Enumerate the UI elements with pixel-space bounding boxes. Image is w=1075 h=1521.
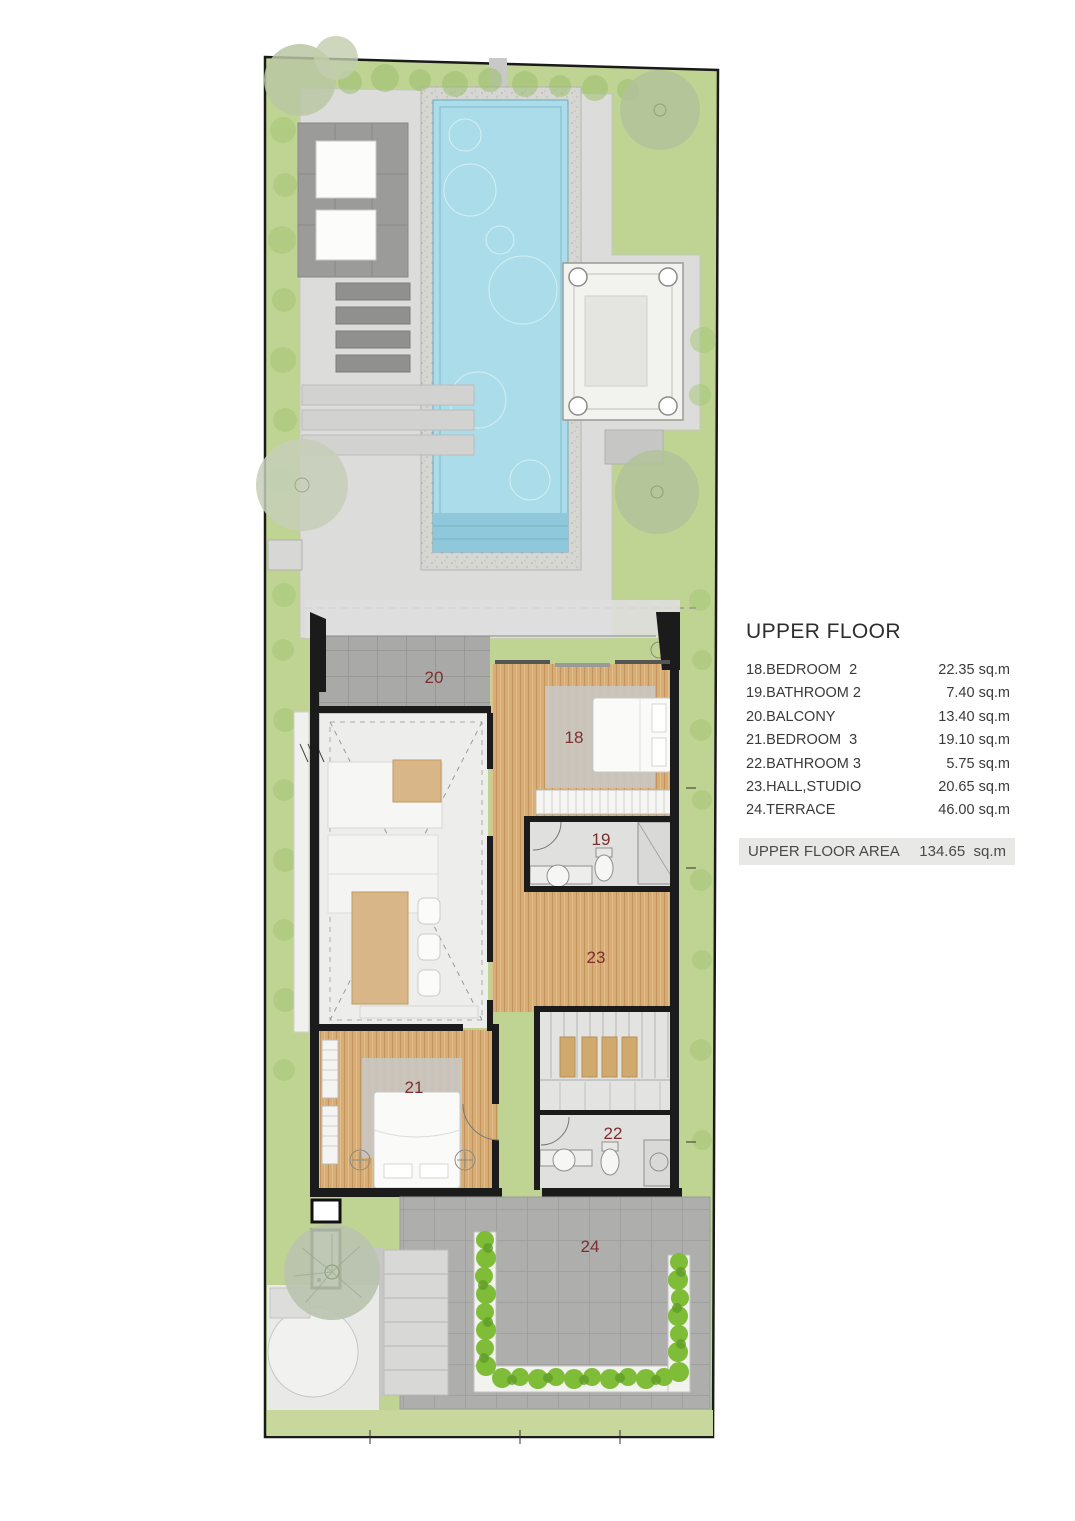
skylight [316, 141, 376, 198]
legend-row-terrace: 24.TERRACE 46.00 sq.m [746, 799, 1010, 822]
toilet [595, 855, 613, 881]
room-name: 20.BALCONY [746, 706, 835, 729]
room-name: 22.BATHROOM 3 [746, 753, 861, 776]
pool-steps [433, 513, 568, 552]
stepping-circle [268, 1307, 358, 1397]
sink [553, 1149, 575, 1171]
room-label-hall: 23 [587, 948, 606, 967]
wide-steps [302, 385, 474, 455]
room-area: 5.75 sq.m [946, 753, 1010, 776]
house-upper-floor [294, 600, 682, 1252]
daybed [585, 296, 647, 386]
room-area: 20.65 sq.m [938, 776, 1010, 799]
room-area: 7.40 sq.m [946, 682, 1010, 705]
room-area: 13.40 sq.m [938, 706, 1010, 729]
grass-verge [267, 1410, 713, 1436]
total-area-value: 134.65 sq.m [919, 843, 1006, 860]
swimming-pool [421, 87, 581, 570]
legend-row-bathroom3: 22.BATHROOM 3 5.75 sq.m [746, 753, 1010, 776]
sink [547, 865, 569, 887]
legend-row-balcony: 20.BALCONY 13.40 sq.m [746, 706, 1010, 729]
total-area-label: UPPER FLOOR AREA [748, 843, 900, 860]
room-area: 22.35 sq.m [938, 659, 1010, 682]
room-name: 23.HALL,STUDIO [746, 776, 861, 799]
room-name: 18.BEDROOM 2 [746, 659, 857, 682]
skylight [316, 210, 376, 260]
legend-row-bedroom2: 18.BEDROOM 2 22.35 sq.m [746, 659, 1010, 682]
room-label-balcony: 20 [425, 668, 444, 687]
garden-steps [384, 1250, 448, 1395]
toilet [601, 1149, 619, 1175]
total-area-bar: UPPER FLOOR AREA 134.65 sq.m [739, 838, 1015, 865]
legend: UPPER FLOOR 18.BEDROOM 2 22.35 sq.m 19.B… [746, 620, 1010, 865]
legend-row-hall: 23.HALL,STUDIO 20.65 sq.m [746, 776, 1010, 799]
room-name: 21.BEDROOM 3 [746, 729, 857, 752]
legend-rows: 18.BEDROOM 2 22.35 sq.m 19.BATHROOM 2 7.… [746, 659, 1010, 823]
dining-table [352, 892, 408, 1004]
room-label-bedroom3: 21 [405, 1078, 424, 1097]
legend-row-bathroom2: 19.BATHROOM 2 7.40 sq.m [746, 682, 1010, 705]
room-label-bathroom3: 22 [604, 1124, 623, 1143]
room-label-terrace: 24 [581, 1237, 600, 1256]
room-name: 19.BATHROOM 2 [746, 682, 861, 705]
pool-water [433, 100, 568, 552]
legend-title: UPPER FLOOR [746, 620, 1010, 644]
balcony-floor [318, 636, 490, 713]
room-area: 19.10 sq.m [938, 729, 1010, 752]
planter-box [268, 540, 302, 570]
floor-plan-sheet: 20 18 19 23 21 22 24 UPPER FLOOR 18.BEDR… [0, 0, 1075, 1521]
room-label-bedroom2: 18 [565, 728, 584, 747]
room-area: 46.00 sq.m [938, 799, 1010, 822]
legend-row-bedroom3: 21.BEDROOM 3 19.10 sq.m [746, 729, 1010, 752]
room-label-bathroom2: 19 [592, 830, 611, 849]
wardrobe [536, 790, 676, 814]
room-name: 24.TERRACE [746, 799, 835, 822]
lower-tree [284, 1224, 380, 1320]
